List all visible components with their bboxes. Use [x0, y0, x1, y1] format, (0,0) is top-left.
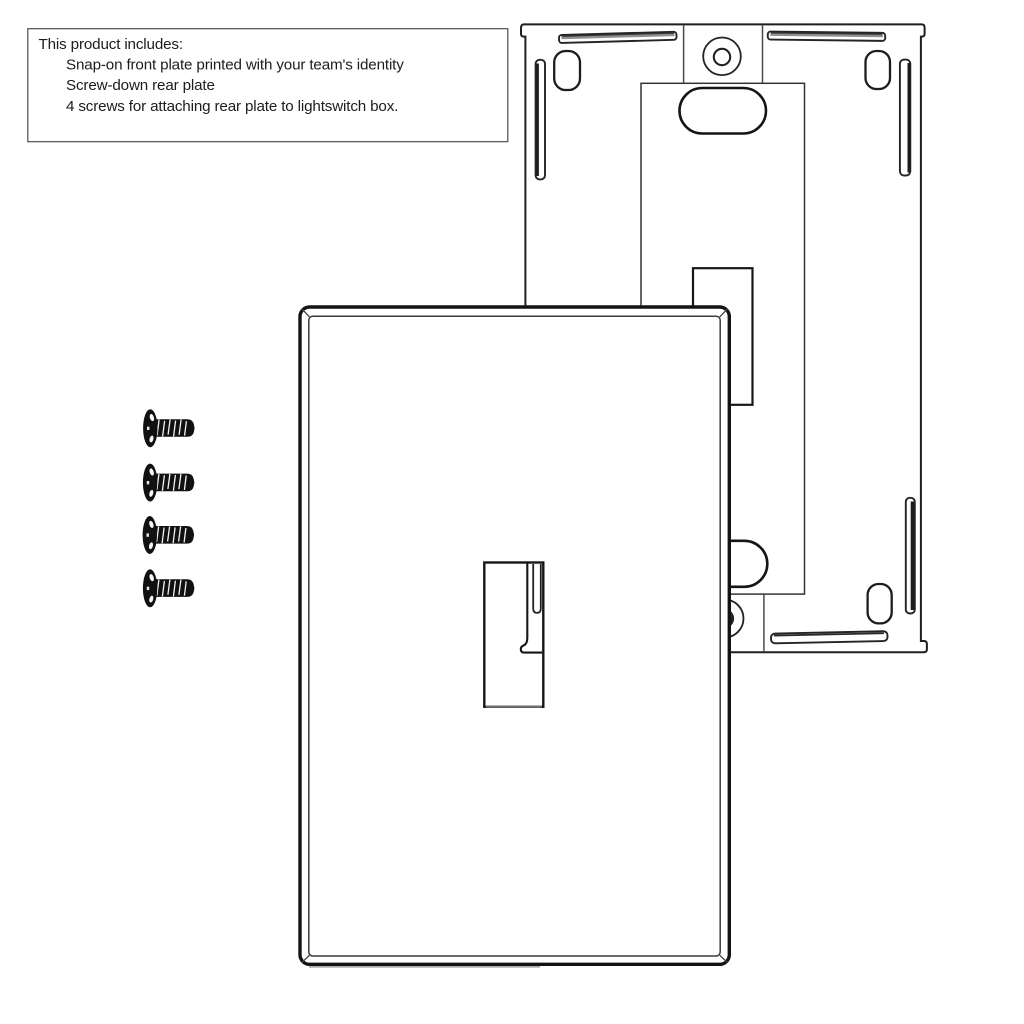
svg-text:Snap-on front plate printed wi: Snap-on front plate printed with your te…: [66, 57, 404, 74]
svg-text:4 screws for attaching rear pl: 4 screws for attaching rear plate to lig…: [66, 98, 398, 115]
svg-text:This product includes:: This product includes:: [39, 36, 183, 53]
svg-text:Screw-down rear plate: Screw-down rear plate: [66, 77, 215, 94]
